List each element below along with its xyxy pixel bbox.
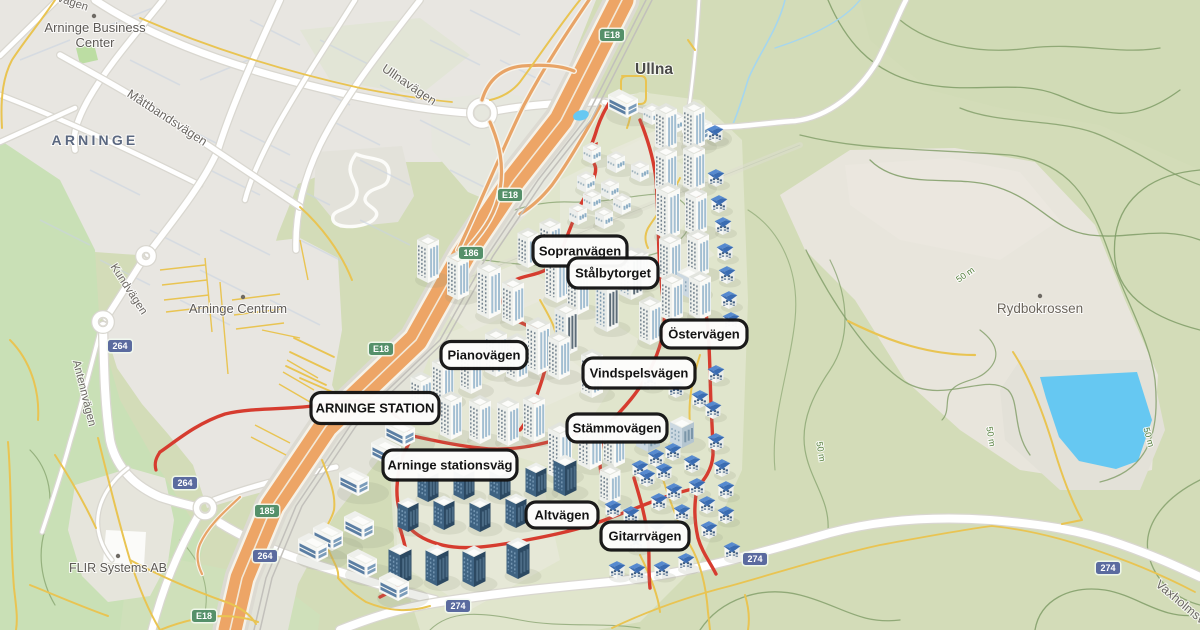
svg-text:Östervägen: Östervägen	[668, 327, 740, 342]
svg-text:Altvägen: Altvägen	[535, 508, 590, 523]
svg-text:Vindspelsvägen: Vindspelsvägen	[590, 366, 689, 381]
svg-text:186: 186	[463, 248, 478, 258]
svg-text:Arninge Centrum: Arninge Centrum	[189, 301, 287, 316]
svg-text:E18: E18	[196, 611, 212, 621]
svg-text:Gitarrvägen: Gitarrvägen	[609, 529, 682, 544]
svg-text:ARNINGE STATION: ARNINGE STATION	[316, 401, 435, 416]
svg-text:Arninge Business: Arninge Business	[44, 20, 146, 35]
svg-text:274: 274	[747, 554, 762, 564]
svg-text:E18: E18	[502, 190, 518, 200]
svg-text:E18: E18	[373, 344, 389, 354]
svg-text:274: 274	[1100, 563, 1115, 573]
svg-text:FLIR Systems AB: FLIR Systems AB	[69, 561, 167, 575]
svg-text:264: 264	[257, 551, 272, 561]
svg-text:Center: Center	[75, 35, 115, 50]
svg-text:274: 274	[450, 601, 465, 611]
svg-text:Ullna: Ullna	[635, 61, 673, 78]
svg-text:Sopranvägen: Sopranvägen	[539, 244, 621, 259]
svg-text:Pianovägen: Pianovägen	[448, 348, 521, 363]
svg-text:264: 264	[112, 341, 127, 351]
svg-text:264: 264	[177, 478, 192, 488]
svg-text:ARNINGE: ARNINGE	[52, 132, 139, 148]
svg-text:Stämmovägen: Stämmovägen	[573, 421, 662, 436]
svg-text:E18: E18	[604, 30, 620, 40]
svg-text:Stålbytorget: Stålbytorget	[575, 266, 652, 281]
svg-text:Rydbokrossen: Rydbokrossen	[997, 301, 1083, 316]
svg-text:Arninge stationsväg: Arninge stationsväg	[388, 458, 513, 473]
svg-text:185: 185	[259, 506, 274, 516]
